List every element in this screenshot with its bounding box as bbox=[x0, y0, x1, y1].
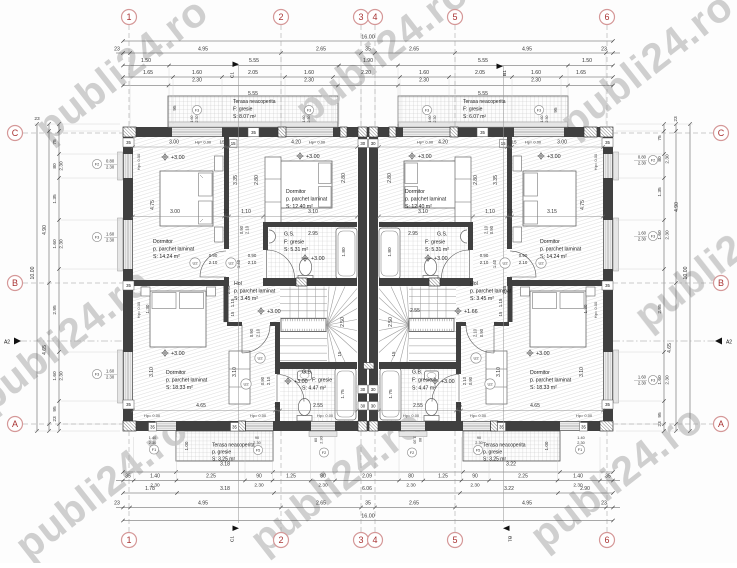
svg-text:+3.00: +3.00 bbox=[267, 309, 281, 315]
svg-text:30: 30 bbox=[371, 141, 376, 146]
svg-text:3.10: 3.10 bbox=[579, 367, 585, 377]
svg-text:2.30: 2.30 bbox=[106, 165, 115, 170]
svg-text:3: 3 bbox=[358, 12, 363, 22]
svg-text:2.09: 2.09 bbox=[362, 474, 372, 480]
svg-text:1.78: 1.78 bbox=[145, 486, 155, 492]
svg-text:Hp= 0.00: Hp= 0.00 bbox=[403, 413, 420, 418]
svg-text:1.40: 1.40 bbox=[149, 436, 156, 440]
svg-text:Hol: Hol bbox=[234, 281, 242, 287]
svg-text:6: 6 bbox=[604, 535, 609, 545]
svg-text:F: gresie: F: gresie bbox=[233, 107, 253, 113]
svg-text:Hp= 0.00: Hp= 0.00 bbox=[136, 153, 141, 170]
svg-text:0.90: 0.90 bbox=[519, 253, 528, 258]
svg-text:2.30: 2.30 bbox=[195, 116, 199, 123]
svg-text:2.95: 2.95 bbox=[657, 304, 663, 314]
svg-text:F3: F3 bbox=[425, 109, 429, 113]
svg-text:2.30: 2.30 bbox=[406, 483, 416, 489]
svg-text:2.30: 2.30 bbox=[475, 441, 482, 445]
svg-text:2.95: 2.95 bbox=[308, 231, 318, 237]
svg-text:15: 15 bbox=[498, 311, 503, 316]
svg-text:Terasa neacoperita: Terasa neacoperita bbox=[463, 99, 506, 105]
svg-text:1.25: 1.25 bbox=[286, 474, 296, 480]
svg-text:2.25: 2.25 bbox=[518, 474, 528, 480]
svg-text:4.95: 4.95 bbox=[522, 47, 532, 53]
svg-text:30: 30 bbox=[360, 387, 365, 392]
svg-text:23: 23 bbox=[601, 501, 607, 507]
svg-text:1.60: 1.60 bbox=[657, 230, 663, 240]
svg-text:2.05: 2.05 bbox=[475, 70, 485, 76]
svg-text:F2: F2 bbox=[95, 163, 99, 167]
svg-text:+3.00: +3.00 bbox=[171, 351, 185, 357]
svg-text:1.60: 1.60 bbox=[540, 116, 544, 123]
svg-text:4: 4 bbox=[372, 535, 377, 545]
svg-text:1.60: 1.60 bbox=[638, 231, 647, 236]
svg-text:95: 95 bbox=[172, 105, 177, 111]
svg-text:35: 35 bbox=[605, 474, 611, 480]
svg-text:S: 8.07 m²: S: 8.07 m² bbox=[233, 114, 256, 120]
svg-text:G.B.: G.B. bbox=[302, 370, 312, 376]
svg-text:1.40: 1.40 bbox=[573, 474, 583, 480]
svg-text:2.30: 2.30 bbox=[419, 78, 429, 84]
svg-text:15: 15 bbox=[511, 140, 517, 145]
svg-text:23: 23 bbox=[601, 47, 607, 53]
svg-text:F3: F3 bbox=[95, 373, 99, 377]
svg-text:1.35: 1.35 bbox=[657, 187, 663, 197]
svg-text:S: 18.33 m²: S: 18.33 m² bbox=[530, 385, 557, 391]
svg-text:2.30: 2.30 bbox=[59, 161, 65, 171]
svg-text:5: 5 bbox=[452, 12, 457, 22]
svg-text:2.80: 2.80 bbox=[473, 175, 479, 185]
svg-text:4.65: 4.65 bbox=[42, 345, 48, 355]
svg-text:S: 3.45 m²: S: 3.45 m² bbox=[470, 296, 494, 302]
svg-text:1.10: 1.10 bbox=[485, 209, 495, 215]
svg-text:80: 80 bbox=[52, 163, 58, 169]
svg-text:3.22: 3.22 bbox=[504, 486, 514, 492]
svg-text:1.60: 1.60 bbox=[304, 70, 314, 76]
svg-text:1.60: 1.60 bbox=[190, 116, 194, 123]
svg-text:4.20: 4.20 bbox=[291, 140, 301, 146]
svg-text:2.55: 2.55 bbox=[410, 308, 420, 314]
svg-text:F5: F5 bbox=[256, 449, 260, 453]
svg-text:+3.00: +3.00 bbox=[311, 256, 325, 262]
svg-text:3.10: 3.10 bbox=[496, 367, 502, 377]
svg-text:p. parchet laminat: p. parchet laminat bbox=[530, 378, 572, 384]
svg-text:S: 12.40 m²: S: 12.40 m² bbox=[405, 204, 432, 210]
svg-text:1.15: 1.15 bbox=[498, 298, 503, 307]
svg-text:1.65: 1.65 bbox=[576, 70, 586, 76]
svg-text:F5: F5 bbox=[476, 449, 480, 453]
svg-text:1.60: 1.60 bbox=[531, 70, 541, 76]
svg-text:80: 80 bbox=[320, 474, 326, 480]
svg-text:Hp= 0.00: Hp= 0.00 bbox=[136, 301, 141, 318]
svg-text:16.00: 16.00 bbox=[361, 35, 375, 41]
svg-text:S: 4.47 m²: S: 4.47 m² bbox=[412, 386, 436, 392]
svg-text:F2: F2 bbox=[410, 451, 414, 455]
svg-text:Hp= 0.00: Hp= 0.00 bbox=[309, 140, 326, 145]
svg-text:2.30: 2.30 bbox=[665, 375, 671, 385]
svg-text:23: 23 bbox=[34, 116, 40, 122]
svg-text:2.50: 2.50 bbox=[340, 317, 346, 327]
svg-text:p. parchet laminat: p. parchet laminat bbox=[470, 289, 512, 295]
svg-text:35: 35 bbox=[581, 424, 586, 429]
svg-text:2.30: 2.30 bbox=[577, 441, 584, 445]
svg-text:5.55: 5.55 bbox=[248, 91, 258, 97]
svg-text:2.30: 2.30 bbox=[470, 483, 480, 489]
svg-text:35: 35 bbox=[605, 283, 610, 288]
svg-text:1.60: 1.60 bbox=[106, 369, 115, 374]
svg-text:35: 35 bbox=[126, 283, 131, 288]
svg-text:F: gresie: F: gresie bbox=[412, 378, 432, 384]
svg-text:2.30: 2.30 bbox=[665, 154, 671, 164]
svg-text:2: 2 bbox=[278, 12, 283, 22]
svg-text:+3.00: +3.00 bbox=[547, 154, 561, 160]
svg-text:2.30: 2.30 bbox=[59, 371, 65, 381]
svg-text:2.80: 2.80 bbox=[341, 173, 347, 183]
svg-text:Hp= 0.00: Hp= 0.00 bbox=[606, 306, 611, 323]
svg-text:1.60: 1.60 bbox=[419, 70, 429, 76]
svg-text:0.90: 0.90 bbox=[248, 253, 257, 258]
svg-text:90: 90 bbox=[256, 474, 262, 480]
svg-text:1.50: 1.50 bbox=[141, 58, 151, 64]
svg-text:F1: F1 bbox=[152, 448, 156, 452]
svg-text:B: B bbox=[718, 278, 724, 288]
svg-text:Hp= 0.00: Hp= 0.00 bbox=[250, 413, 267, 418]
svg-text:80: 80 bbox=[657, 156, 663, 162]
svg-text:0.80: 0.80 bbox=[638, 155, 647, 160]
svg-text:4.95: 4.95 bbox=[522, 501, 532, 507]
svg-text:15: 15 bbox=[391, 351, 396, 356]
svg-text:p. parchet laminat: p. parchet laminat bbox=[405, 197, 447, 203]
svg-text:90: 90 bbox=[255, 436, 259, 440]
svg-text:2.55: 2.55 bbox=[313, 403, 323, 409]
svg-text:B: B bbox=[12, 278, 18, 288]
svg-text:+3.00: +3.00 bbox=[171, 155, 185, 161]
svg-text:2.80: 2.80 bbox=[387, 173, 393, 183]
svg-text:S: 4.47 m²: S: 4.47 m² bbox=[302, 386, 326, 392]
svg-text:U2: U2 bbox=[228, 261, 234, 266]
svg-text:1.30: 1.30 bbox=[583, 304, 588, 313]
svg-text:p. parchet laminat: p. parchet laminat bbox=[540, 247, 582, 253]
svg-text:15: 15 bbox=[219, 140, 225, 145]
svg-text:1.00: 1.00 bbox=[544, 441, 549, 450]
svg-text:15: 15 bbox=[507, 209, 513, 215]
svg-text:35: 35 bbox=[365, 47, 371, 53]
svg-text:2.10: 2.10 bbox=[519, 260, 528, 265]
svg-text:23: 23 bbox=[114, 501, 120, 507]
svg-text:p. gresie: p. gresie bbox=[483, 450, 502, 456]
svg-text:3.35: 3.35 bbox=[233, 175, 239, 185]
svg-text:95: 95 bbox=[553, 107, 558, 113]
svg-text:2.30: 2.30 bbox=[253, 441, 260, 445]
svg-text:Dormitor: Dormitor bbox=[286, 189, 306, 195]
svg-text:1.65: 1.65 bbox=[143, 70, 153, 76]
svg-text:S: 3.25 m²: S: 3.25 m² bbox=[483, 457, 506, 463]
svg-text:0.90: 0.90 bbox=[480, 253, 489, 258]
svg-text:95: 95 bbox=[657, 412, 663, 418]
svg-text:2.65: 2.65 bbox=[316, 47, 326, 53]
svg-text:35: 35 bbox=[150, 424, 155, 429]
svg-text:30: 30 bbox=[360, 403, 365, 408]
svg-text:15: 15 bbox=[223, 209, 229, 215]
svg-text:F3: F3 bbox=[537, 109, 541, 113]
svg-text:A: A bbox=[12, 419, 18, 429]
svg-text:3: 3 bbox=[358, 535, 363, 545]
svg-text:0.90: 0.90 bbox=[489, 225, 494, 234]
svg-text:35: 35 bbox=[251, 130, 256, 135]
svg-text:3.15: 3.15 bbox=[547, 209, 557, 215]
svg-text:3.22: 3.22 bbox=[506, 462, 516, 468]
svg-text:Hp= 0.00: Hp= 0.00 bbox=[144, 413, 161, 418]
svg-text:3.10: 3.10 bbox=[149, 367, 155, 377]
svg-text:2.55: 2.55 bbox=[226, 285, 231, 294]
svg-text:Hp= 0.00: Hp= 0.00 bbox=[593, 301, 598, 318]
svg-text:3.00: 3.00 bbox=[170, 209, 180, 215]
svg-text:1.80: 1.80 bbox=[341, 247, 347, 257]
svg-text:10.00: 10.00 bbox=[683, 266, 689, 279]
svg-text:3.18: 3.18 bbox=[220, 486, 230, 492]
svg-text:1.10: 1.10 bbox=[241, 209, 251, 215]
svg-text:2.30: 2.30 bbox=[307, 116, 311, 123]
svg-text:35: 35 bbox=[126, 402, 131, 407]
svg-text:S: 5.31 m²: S: 5.31 m² bbox=[284, 247, 308, 253]
svg-text:23: 23 bbox=[114, 47, 120, 53]
svg-text:2.30: 2.30 bbox=[304, 78, 314, 84]
svg-text:4.65: 4.65 bbox=[667, 343, 673, 353]
svg-text:F3: F3 bbox=[651, 379, 655, 383]
svg-text:Hp= 0.00: Hp= 0.00 bbox=[576, 413, 593, 418]
svg-text:U2: U2 bbox=[487, 382, 493, 387]
svg-text:+1.66: +1.66 bbox=[464, 309, 478, 315]
svg-text:F3: F3 bbox=[195, 109, 199, 113]
svg-text:1.60: 1.60 bbox=[52, 371, 58, 381]
svg-text:C1: C1 bbox=[230, 72, 236, 78]
svg-text:35: 35 bbox=[125, 474, 131, 480]
svg-text:6.06: 6.06 bbox=[362, 486, 372, 492]
svg-text:2.90: 2.90 bbox=[580, 486, 590, 492]
svg-text:2.30: 2.30 bbox=[254, 483, 264, 489]
svg-text:U2: U2 bbox=[243, 382, 249, 387]
svg-text:G.B.: G.B. bbox=[412, 370, 422, 376]
svg-text:S: 12.40 m²: S: 12.40 m² bbox=[286, 204, 313, 210]
svg-text:2.30: 2.30 bbox=[192, 78, 202, 84]
svg-text:0.90: 0.90 bbox=[479, 328, 484, 337]
svg-text:F2: F2 bbox=[322, 451, 326, 455]
svg-text:+3.00: +3.00 bbox=[441, 379, 455, 385]
svg-text:4: 4 bbox=[372, 12, 377, 22]
svg-text:2.10: 2.10 bbox=[462, 376, 467, 385]
svg-text:4.95: 4.95 bbox=[198, 47, 208, 53]
svg-text:2.30: 2.30 bbox=[545, 116, 549, 123]
svg-text:F: gresie: F: gresie bbox=[312, 378, 332, 384]
svg-text:1.60: 1.60 bbox=[428, 116, 432, 123]
svg-text:2.30: 2.30 bbox=[318, 483, 328, 489]
svg-text:35: 35 bbox=[365, 501, 371, 507]
svg-text:S: 3.25 m²: S: 3.25 m² bbox=[212, 457, 235, 463]
svg-text:35: 35 bbox=[605, 140, 610, 145]
svg-text:5.55: 5.55 bbox=[478, 91, 488, 97]
svg-text:2.10: 2.10 bbox=[256, 328, 261, 337]
svg-text:p. parchet laminat: p. parchet laminat bbox=[234, 289, 276, 295]
svg-text:2.95: 2.95 bbox=[408, 231, 418, 237]
svg-text:Hp= 0.00: Hp= 0.00 bbox=[317, 413, 334, 418]
svg-text:Terasa neacoperita: Terasa neacoperita bbox=[233, 99, 276, 105]
svg-text:1: 1 bbox=[126, 535, 131, 545]
svg-text:1.25: 1.25 bbox=[438, 474, 448, 480]
svg-text:3.00: 3.00 bbox=[169, 140, 179, 146]
svg-text:C1: C1 bbox=[230, 536, 236, 542]
svg-text:15: 15 bbox=[230, 311, 235, 316]
svg-text:0.90: 0.90 bbox=[209, 253, 218, 258]
svg-text:30: 30 bbox=[371, 387, 376, 392]
svg-text:2.25: 2.25 bbox=[206, 474, 216, 480]
svg-text:95: 95 bbox=[52, 406, 58, 412]
svg-text:2.30: 2.30 bbox=[433, 116, 437, 123]
svg-text:F3: F3 bbox=[651, 235, 655, 239]
svg-text:1.60: 1.60 bbox=[638, 375, 647, 380]
svg-text:U2: U2 bbox=[192, 261, 198, 266]
svg-text:2.95: 2.95 bbox=[52, 305, 58, 315]
svg-text:Hp= 0.00: Hp= 0.00 bbox=[195, 140, 212, 145]
svg-text:5.55: 5.55 bbox=[249, 58, 259, 64]
svg-text:16.00: 16.00 bbox=[361, 514, 375, 520]
svg-text:2.30: 2.30 bbox=[106, 375, 115, 380]
svg-text:0.80: 0.80 bbox=[106, 159, 115, 164]
svg-text:4.75: 4.75 bbox=[150, 200, 156, 210]
svg-text:3.35: 3.35 bbox=[493, 175, 499, 185]
svg-text:1.40: 1.40 bbox=[236, 259, 241, 268]
svg-text:2.30: 2.30 bbox=[149, 441, 156, 445]
svg-text:4.65: 4.65 bbox=[530, 403, 540, 409]
svg-text:0.90: 0.90 bbox=[468, 376, 473, 385]
svg-text:75: 75 bbox=[52, 139, 58, 145]
svg-text:F: gresie: F: gresie bbox=[463, 107, 483, 113]
svg-text:1.80: 1.80 bbox=[387, 247, 393, 257]
svg-text:S: 6.07 m²: S: 6.07 m² bbox=[463, 114, 486, 120]
svg-text:2.05: 2.05 bbox=[248, 70, 258, 76]
svg-text:2.10: 2.10 bbox=[248, 260, 257, 265]
svg-text:2.65: 2.65 bbox=[409, 47, 419, 53]
svg-text:G.S.: G.S. bbox=[284, 232, 294, 238]
svg-text:+3.00: +3.00 bbox=[536, 351, 550, 357]
svg-text:2.50: 2.50 bbox=[388, 317, 394, 327]
svg-text:4.95: 4.95 bbox=[198, 501, 208, 507]
svg-text:2.30: 2.30 bbox=[665, 230, 671, 240]
svg-text:p. parchet laminat: p. parchet laminat bbox=[153, 247, 195, 253]
svg-text:4.20: 4.20 bbox=[438, 140, 448, 146]
svg-text:2.30: 2.30 bbox=[638, 237, 647, 242]
svg-text:S: 14.24 m²: S: 14.24 m² bbox=[153, 254, 180, 260]
svg-text:1.60: 1.60 bbox=[192, 70, 202, 76]
svg-text:U2: U2 bbox=[257, 356, 263, 361]
svg-text:Hp= 0.00: Hp= 0.00 bbox=[470, 413, 487, 418]
svg-text:Terasa neacoperita: Terasa neacoperita bbox=[483, 443, 526, 449]
svg-text:2.30: 2.30 bbox=[320, 436, 324, 443]
svg-text:Dormitor: Dormitor bbox=[405, 189, 425, 195]
svg-text:10.00: 10.00 bbox=[30, 266, 36, 279]
svg-text:2.30: 2.30 bbox=[638, 161, 647, 166]
svg-text:0.90: 0.90 bbox=[260, 376, 265, 385]
svg-text:2.80: 2.80 bbox=[254, 175, 260, 185]
svg-text:1.30: 1.30 bbox=[145, 304, 150, 313]
svg-text:75: 75 bbox=[657, 135, 663, 141]
svg-text:S: 18.33 m²: S: 18.33 m² bbox=[166, 385, 193, 391]
svg-text:2.10: 2.10 bbox=[209, 260, 218, 265]
svg-text:Hp= 0.00: Hp= 0.00 bbox=[525, 140, 542, 145]
svg-text:2.30: 2.30 bbox=[413, 436, 417, 443]
svg-text:35: 35 bbox=[126, 140, 131, 145]
svg-text:G.S.: G.S. bbox=[437, 232, 447, 238]
svg-text:4.75: 4.75 bbox=[580, 200, 586, 210]
svg-text:1.35: 1.35 bbox=[52, 194, 58, 204]
svg-text:F3: F3 bbox=[95, 236, 99, 240]
svg-text:Hp= 0.00: Hp= 0.00 bbox=[593, 153, 598, 170]
svg-text:2.20: 2.20 bbox=[361, 70, 371, 76]
svg-text:Hp= 0.00: Hp= 0.00 bbox=[123, 306, 128, 323]
svg-text:1.50: 1.50 bbox=[582, 58, 592, 64]
svg-text:1.60: 1.60 bbox=[657, 375, 663, 385]
svg-text:F1: F1 bbox=[578, 448, 582, 452]
svg-text:0.90: 0.90 bbox=[239, 225, 244, 234]
svg-text:1.75: 1.75 bbox=[388, 389, 394, 399]
svg-text:U2: U2 bbox=[473, 356, 479, 361]
svg-text:23: 23 bbox=[673, 116, 679, 122]
svg-text:U2: U2 bbox=[502, 261, 508, 266]
svg-text:1.60: 1.60 bbox=[302, 116, 306, 123]
svg-text:p. parchet laminat: p. parchet laminat bbox=[286, 197, 328, 203]
svg-text:90: 90 bbox=[477, 436, 481, 440]
svg-text:C: C bbox=[718, 128, 725, 138]
svg-text:Hp= 0.00: Hp= 0.00 bbox=[417, 140, 434, 145]
svg-text:A2: A2 bbox=[4, 340, 10, 346]
svg-text:80: 80 bbox=[314, 438, 318, 442]
svg-text:6: 6 bbox=[604, 12, 609, 22]
svg-text:S: 5.31 m²: S: 5.31 m² bbox=[425, 247, 449, 253]
svg-text:Dormitor: Dormitor bbox=[153, 239, 173, 245]
svg-text:0.90: 0.90 bbox=[249, 328, 254, 337]
svg-text:F2: F2 bbox=[651, 159, 655, 163]
svg-text:Dormitor: Dormitor bbox=[540, 239, 560, 245]
svg-text:2.10: 2.10 bbox=[245, 225, 250, 234]
svg-text:Dormitor: Dormitor bbox=[166, 370, 186, 376]
svg-text:F: gresie: F: gresie bbox=[425, 240, 445, 246]
svg-text:1: 1 bbox=[126, 12, 131, 22]
svg-text:2.10: 2.10 bbox=[473, 328, 478, 337]
svg-text:15: 15 bbox=[337, 351, 342, 356]
svg-text:+3.00: +3.00 bbox=[294, 379, 308, 385]
svg-text:1.60: 1.60 bbox=[52, 239, 58, 249]
svg-text:1.75: 1.75 bbox=[340, 389, 346, 399]
svg-text:2.10: 2.10 bbox=[266, 376, 271, 385]
svg-text:2.30: 2.30 bbox=[106, 238, 115, 243]
svg-text:2.10: 2.10 bbox=[480, 260, 489, 265]
svg-text:2.65: 2.65 bbox=[409, 501, 419, 507]
svg-text:F3: F3 bbox=[307, 109, 311, 113]
svg-text:2: 2 bbox=[278, 535, 283, 545]
svg-text:4.65: 4.65 bbox=[196, 403, 206, 409]
svg-text:1.40: 1.40 bbox=[492, 259, 497, 268]
svg-text:30: 30 bbox=[371, 403, 376, 408]
svg-text:35: 35 bbox=[232, 424, 237, 429]
svg-text:23: 23 bbox=[52, 416, 58, 422]
svg-text:2.30: 2.30 bbox=[638, 381, 647, 386]
svg-text:2.10: 2.10 bbox=[484, 225, 489, 234]
svg-text:Terasa neacoperita: Terasa neacoperita bbox=[212, 443, 255, 449]
svg-text:35: 35 bbox=[480, 130, 485, 135]
svg-text:+3.00: +3.00 bbox=[306, 154, 320, 160]
svg-text:80: 80 bbox=[408, 474, 414, 480]
svg-text:2.30: 2.30 bbox=[531, 78, 541, 84]
svg-text:3.00: 3.00 bbox=[557, 140, 567, 146]
